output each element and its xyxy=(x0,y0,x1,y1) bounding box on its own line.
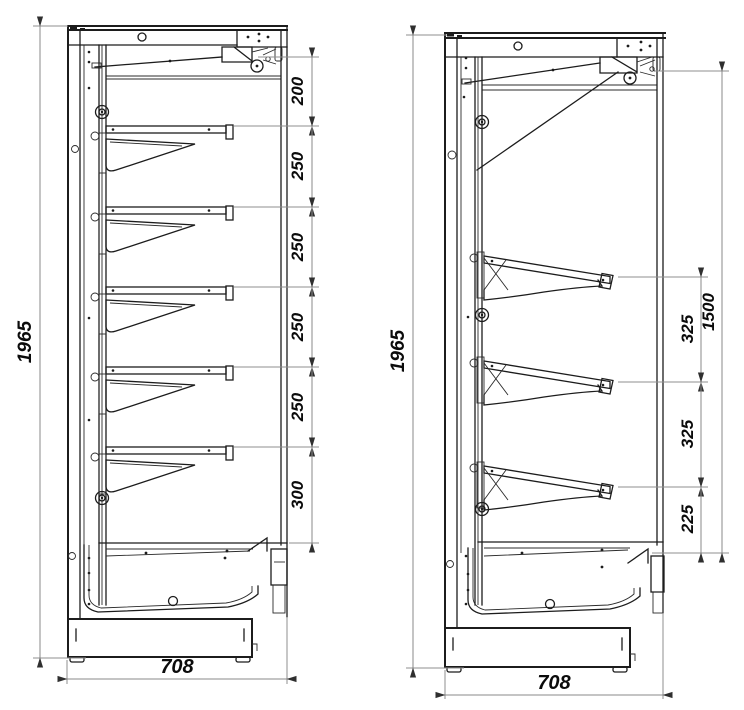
tilted-shelf xyxy=(470,252,613,300)
dim-label-left-gap-5: 300 xyxy=(288,480,307,509)
shelf xyxy=(91,125,233,173)
dim-label-left-depth: 708 xyxy=(160,656,194,678)
right-cabinet-shelves xyxy=(470,252,613,510)
dim-label-right-gap-0: 325 xyxy=(678,314,697,343)
right-cabinet-canopy xyxy=(445,33,665,57)
dim-label-left-gap-2: 250 xyxy=(288,232,307,262)
dim-label-right-shelf-zone: 1500 xyxy=(699,293,718,331)
dim-label-left-gap-3: 250 xyxy=(288,312,307,342)
right-cabinet-cross-section: 1965 325 325 225 1500 708 xyxy=(388,33,729,699)
canopy-hole xyxy=(138,33,146,41)
dim-label-left-gap-0: 200 xyxy=(288,76,307,106)
dim-label-right-gap-1: 325 xyxy=(678,419,697,448)
left-cabinet-base xyxy=(68,538,287,662)
technical-drawing-canvas: 1965 200 250 250 250 250 300 708 xyxy=(0,0,744,710)
right-cabinet-dimensions: 1965 325 325 225 1500 708 xyxy=(388,35,729,699)
tilted-shelf xyxy=(470,357,613,405)
left-cabinet-canopy xyxy=(68,26,287,47)
dim-label-left-gap-1: 250 xyxy=(288,151,307,181)
left-cabinet-back-frame xyxy=(68,26,109,619)
shelf xyxy=(91,366,233,414)
left-cabinet-front-edge xyxy=(281,26,287,617)
dim-label-right-height: 1965 xyxy=(388,329,409,372)
canopy-hole xyxy=(514,42,522,50)
left-cabinet-cross-section: 1965 200 250 250 250 250 300 708 xyxy=(15,26,319,684)
air-curtain-diagonal xyxy=(477,72,618,170)
right-cabinet-front-edge xyxy=(657,33,663,613)
dim-label-right-depth: 708 xyxy=(537,672,571,694)
shelf xyxy=(91,446,233,494)
dim-label-left-height: 1965 xyxy=(15,320,36,363)
shelf xyxy=(91,286,233,334)
shelf xyxy=(91,206,233,254)
right-cabinet-fan-assembly xyxy=(600,57,660,84)
dim-label-left-gap-4: 250 xyxy=(288,392,307,422)
right-cabinet-back-frame xyxy=(445,33,489,628)
left-cabinet-fan-assembly xyxy=(222,47,282,72)
tilted-shelf xyxy=(470,462,613,510)
right-cabinet-air-duct xyxy=(462,63,657,170)
dim-label-right-gap-2: 225 xyxy=(678,504,697,534)
page: 1965 200 250 250 250 250 300 708 xyxy=(0,0,744,710)
left-cabinet-shelves xyxy=(91,125,233,494)
